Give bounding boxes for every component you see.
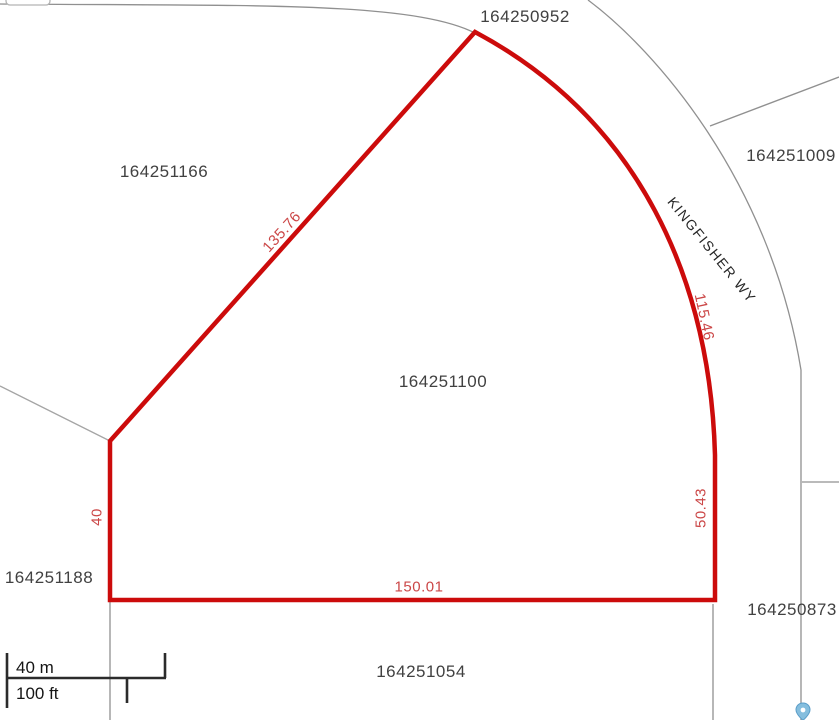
map-pin-icon[interactable] — [796, 703, 810, 720]
scale-imperial-label: 100 ft — [16, 684, 59, 704]
parcel-label-top: 164250952 — [480, 7, 570, 27]
top-left-notch — [6, 0, 50, 5]
boundary-line-west — [0, 386, 110, 441]
parcel-label-bottom-right: 164250873 — [747, 600, 837, 620]
boundary-curve-top — [0, 4, 475, 33]
parcel-map-canvas[interactable]: 164250952 164251166 164251009 164251100 … — [0, 0, 839, 720]
parcel-label-right: 164251009 — [746, 146, 836, 166]
parcel-label-left: 164251166 — [120, 162, 208, 182]
parcel-label-highlighted: 164251100 — [399, 372, 487, 392]
parcel-label-bottom-center: 164251054 — [376, 662, 466, 682]
map-lines-layer — [0, 0, 839, 720]
dimension-label-south: 150.01 — [395, 579, 444, 596]
scale-metric-label: 40 m — [16, 658, 54, 678]
boundary-line-northeast — [710, 77, 839, 126]
parcel-label-bottom-left: 164251188 — [5, 568, 93, 588]
highlighted-parcel-outline[interactable] — [110, 32, 715, 600]
dimension-label-east-straight: 50.43 — [693, 488, 710, 528]
dimension-label-west: 40 — [89, 508, 106, 526]
